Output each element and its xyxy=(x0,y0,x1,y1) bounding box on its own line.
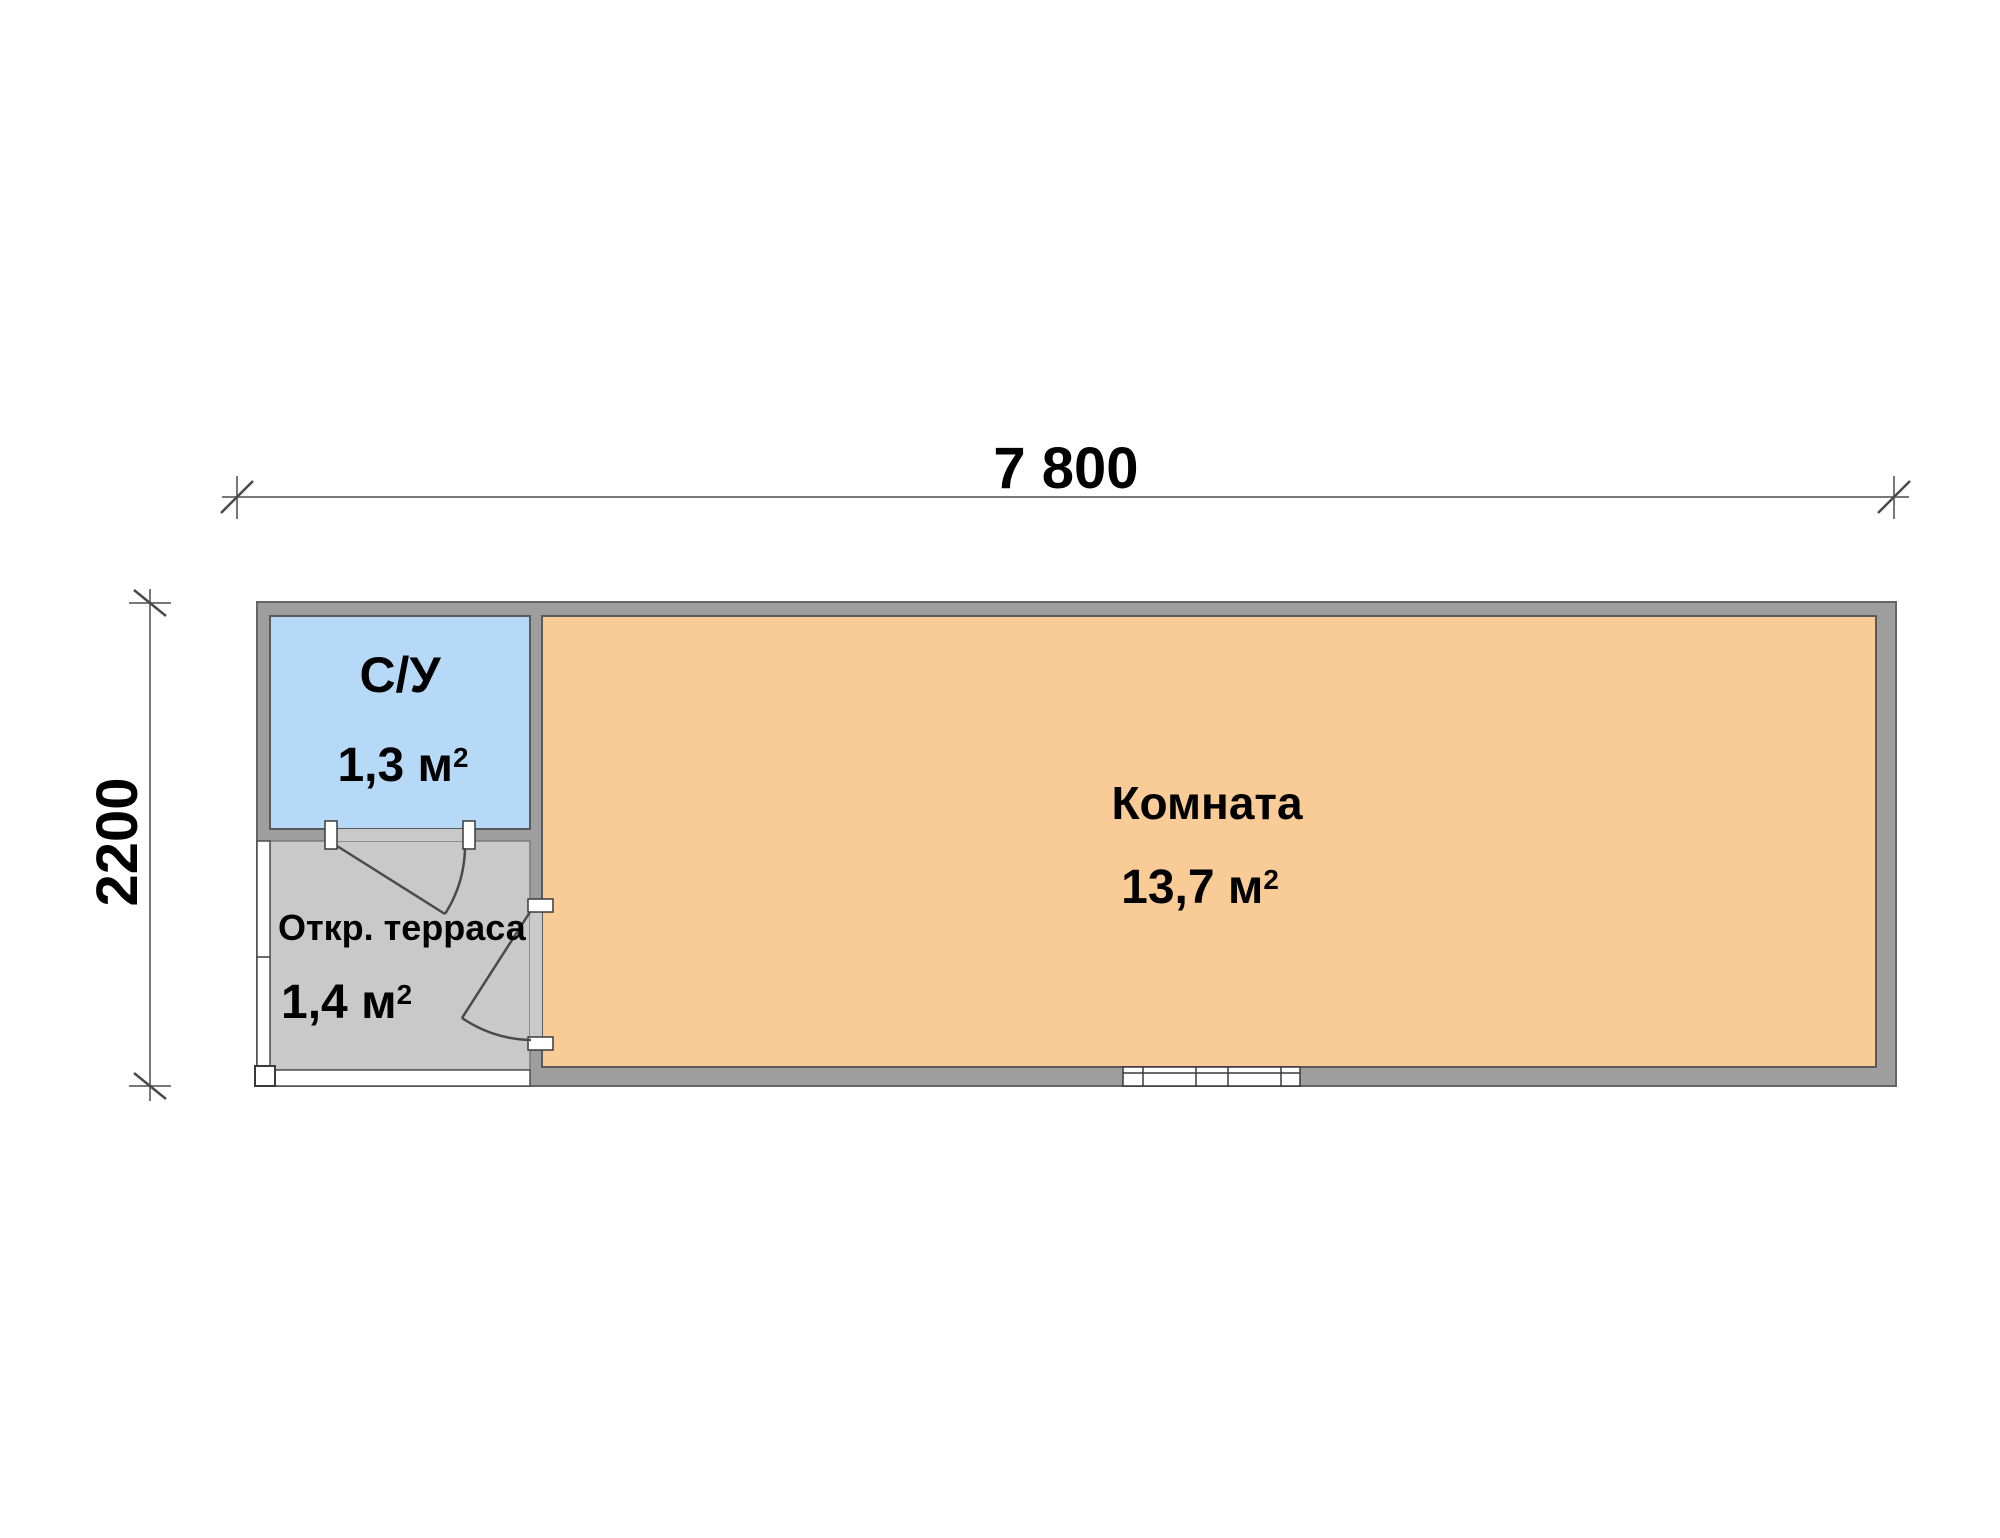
living-door-jamb-bottom xyxy=(528,1037,553,1050)
area-superscript: 2 xyxy=(453,742,468,773)
bathroom-area-label: 1,3 м2 xyxy=(337,742,468,790)
terrace-corner-post xyxy=(255,1066,275,1086)
area-superscript: 2 xyxy=(1263,864,1278,895)
terrace-open-edge-bottom xyxy=(257,1070,530,1086)
living-door-opening xyxy=(530,910,542,1038)
height-dimension-label: 2200 xyxy=(89,777,147,906)
living-door-jamb-top xyxy=(528,899,553,912)
width-dimension-label: 7 800 xyxy=(993,440,1138,498)
terrace-area-label: 1,4 м2 xyxy=(281,979,412,1027)
bathroom-door-jamb-left xyxy=(325,821,337,849)
terrace-open-edge-left xyxy=(257,841,270,1086)
floor-plan-drawing xyxy=(0,0,2000,1538)
area-superscript: 2 xyxy=(397,979,412,1010)
area-value: 1,3 м xyxy=(337,739,453,792)
window-frame xyxy=(1123,1067,1300,1086)
area-value: 1,4 м xyxy=(281,976,397,1029)
bathroom-name-label: С/У xyxy=(359,650,440,700)
living-name-label: Комната xyxy=(1111,780,1302,826)
bathroom-door-opening xyxy=(336,829,464,841)
terrace-name-label: Откр. терраса xyxy=(278,910,526,946)
room-terrace xyxy=(270,841,530,1070)
living-area-label: 13,7 м2 xyxy=(1121,864,1279,912)
room-living xyxy=(542,616,1876,1067)
floor-plan-canvas: 7 800 2200 С/У 1,3 м2 Комната 13,7 м2 От… xyxy=(0,0,2000,1538)
bathroom-door-jamb-right xyxy=(463,821,475,849)
window xyxy=(1123,1067,1300,1086)
area-value: 13,7 м xyxy=(1121,861,1263,914)
